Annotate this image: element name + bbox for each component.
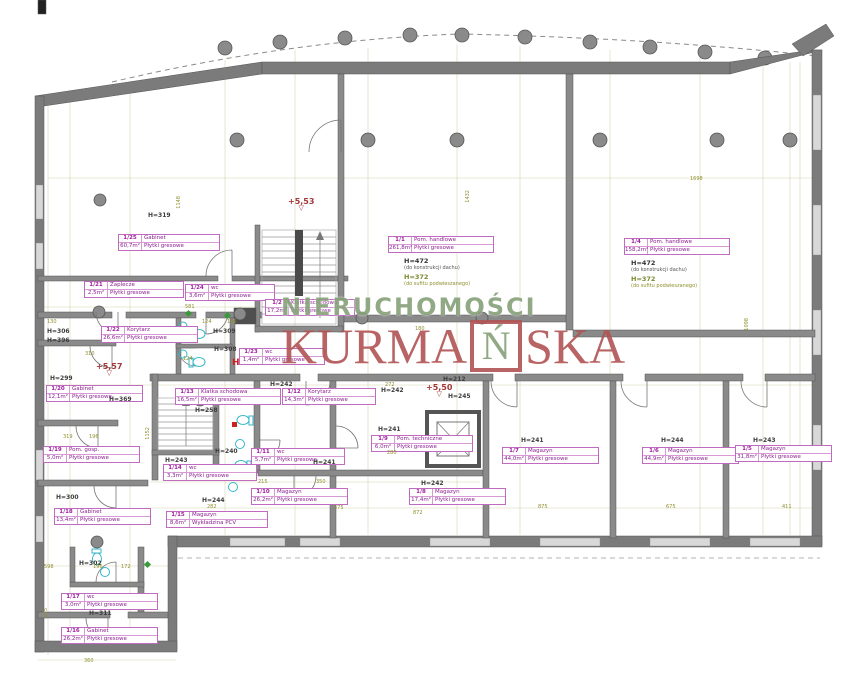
toilet-icon	[92, 549, 102, 565]
sink-icon	[229, 483, 238, 492]
sink-icon	[101, 568, 110, 577]
watermark-kurma-n: Ń	[482, 326, 511, 366]
toilet-icon	[237, 416, 253, 426]
watermark-n-box: Ń	[470, 320, 522, 372]
sink-icon	[236, 440, 245, 449]
hydrant-dot	[232, 422, 237, 427]
staircase-lower	[158, 398, 213, 450]
floor-plan: 1/25Gabinet60,7m²Płytki gresowe1/21Zaple…	[0, 0, 854, 680]
watermark: NIERUCHOMOŚCI KURMA Ń SKA	[281, 293, 625, 375]
elevator-shaft	[427, 412, 479, 466]
toilet-icon	[235, 461, 251, 471]
watermark-kurma-post: SKA	[525, 317, 625, 375]
canopy-columns	[218, 28, 772, 65]
watermark-line2: KURMA Ń SKA	[281, 317, 625, 375]
watermark-kurma-pre: KURMA	[281, 317, 467, 375]
toilet-icon	[189, 330, 205, 340]
